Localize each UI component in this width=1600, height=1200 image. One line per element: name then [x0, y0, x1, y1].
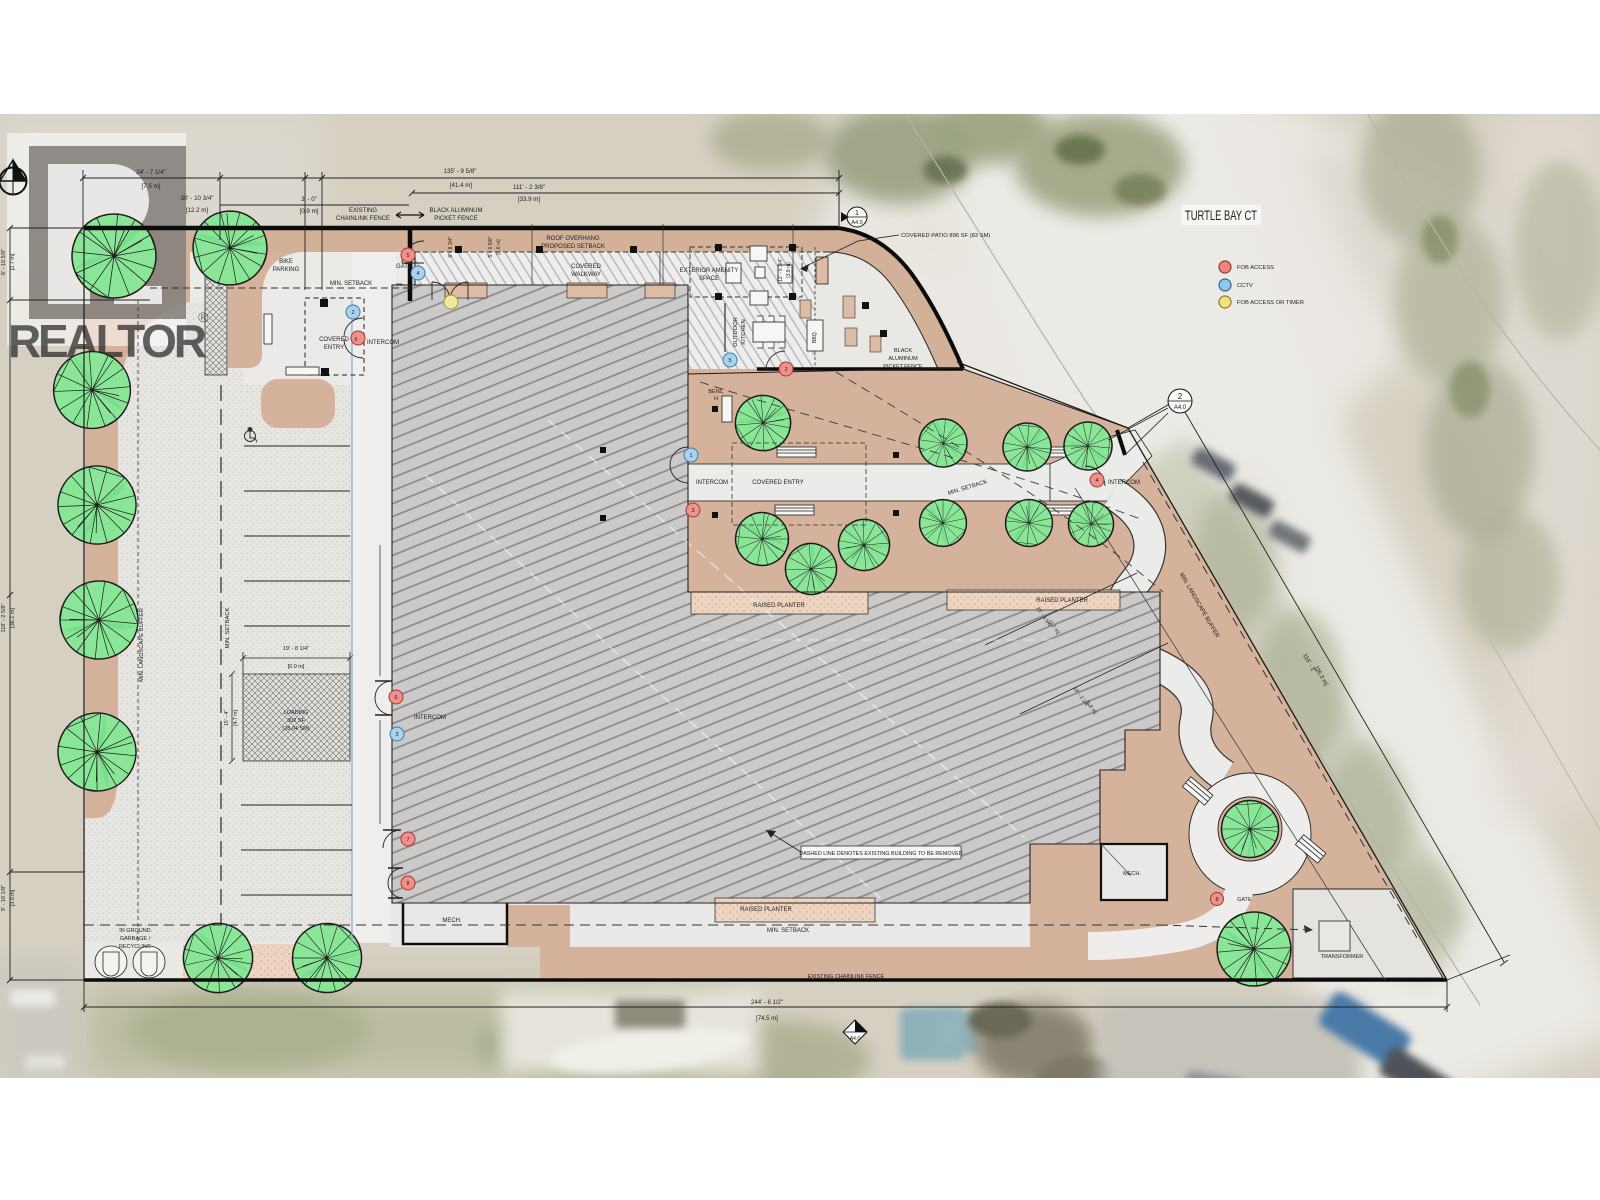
svg-text:RECYCLING: RECYCLING [119, 944, 151, 950]
svg-text:2: 2 [784, 367, 787, 373]
svg-text:8: 8 [1215, 897, 1218, 903]
svg-text:INTERCOM: INTERCOM [696, 480, 728, 486]
svg-text:6' - 8 3/4": 6' - 8 3/4" [448, 236, 454, 257]
svg-text:[36.1 m]: [36.1 m] [10, 608, 16, 628]
svg-text:PARKING: PARKING [273, 267, 300, 273]
svg-text:4: 4 [416, 271, 419, 277]
svg-text:MIN. SETBACK: MIN. SETBACK [767, 928, 809, 934]
svg-text:MIN. SETBACK: MIN. SETBACK [330, 281, 372, 287]
svg-text:GARBAGE /: GARBAGE / [120, 936, 151, 942]
svg-text:15' - 4": 15' - 4" [224, 710, 230, 726]
svg-text:3: 3 [691, 508, 694, 514]
svg-text:6: 6 [354, 337, 357, 343]
svg-text:[2.7 m]: [2.7 m] [10, 253, 16, 270]
svg-text:302 SF: 302 SF [287, 718, 305, 724]
svg-text:ALUMINUM: ALUMINUM [888, 356, 918, 362]
svg-text:TURTLE BAY CT: TURTLE BAY CT [1185, 208, 1257, 223]
svg-text:MECH.: MECH. [442, 918, 462, 924]
svg-text:111' - 2 3/8": 111' - 2 3/8" [513, 184, 545, 191]
svg-text:[74.5 m]: [74.5 m] [756, 1016, 778, 1022]
svg-text:[1.6 m]: [1.6 m] [496, 239, 502, 255]
svg-text:[0.9 m]: [0.9 m] [300, 208, 319, 215]
svg-text:INTERCOM: INTERCOM [414, 715, 446, 721]
svg-text:ENTRY: ENTRY [324, 345, 344, 351]
svg-text:MIN. SETBACK: MIN. SETBACK [225, 607, 231, 648]
svg-text:®: ® [198, 309, 209, 325]
svg-text:[3.8 m]: [3.8 m] [786, 262, 792, 278]
svg-text:H: H [714, 396, 718, 402]
svg-text:BBQ.: BBQ. [812, 331, 818, 343]
svg-text:A4.0: A4.0 [850, 1036, 861, 1042]
svg-text:[41.4 m]: [41.4 m] [450, 182, 473, 189]
svg-text:[33.9 m]: [33.9 m] [518, 196, 541, 203]
svg-text:244' - 6 1/2": 244' - 6 1/2" [751, 1000, 783, 1006]
svg-text:PICKET FENCE: PICKET FENCE [434, 216, 478, 222]
svg-text:[3.0 m]: [3.0 m] [10, 889, 16, 906]
svg-text:RAISED PLANTER: RAISED PLANTER [1036, 598, 1088, 604]
svg-text:5: 5 [406, 253, 409, 259]
svg-text:19' - 8 1/4": 19' - 8 1/4" [283, 646, 309, 652]
svg-text:ROOF OVERHANG: ROOF OVERHANG [546, 236, 600, 242]
svg-text:IN GROUND: IN GROUND [119, 928, 151, 934]
svg-text:RAISED PLANTER: RAISED PLANTER [740, 907, 792, 913]
svg-text:WALKWAY: WALKWAY [571, 272, 601, 278]
svg-text:[12.2 m]: [12.2 m] [186, 207, 209, 214]
svg-text:30' - 10 3/4": 30' - 10 3/4" [181, 195, 214, 202]
svg-text:4: 4 [1095, 478, 1098, 484]
svg-text:EXISTING CHAINLINK FENCE: EXISTING CHAINLINK FENCE [808, 974, 885, 980]
svg-text:MIN. LANDSCAPE BUFFER: MIN. LANDSCAPE BUFFER [139, 608, 145, 682]
svg-text:COVERED: COVERED [319, 337, 349, 343]
svg-text:7: 7 [406, 837, 409, 843]
svg-text:OUTDOOR: OUTDOOR [733, 317, 739, 347]
svg-text:BIKE: BIKE [279, 259, 293, 265]
svg-text:GATE: GATE [396, 264, 412, 270]
svg-text:1: 1 [689, 453, 692, 459]
svg-text:24' - 7 1/4": 24' - 7 1/4" [136, 169, 166, 176]
svg-text:SPACE: SPACE [699, 276, 719, 282]
svg-text:1: 1 [855, 210, 859, 217]
svg-text:135' - 9 5/8": 135' - 9 5/8" [444, 168, 477, 175]
svg-text:[6.0 m]: [6.0 m] [288, 664, 305, 670]
svg-text:8' - 10 5/8": 8' - 10 5/8" [1, 249, 7, 275]
svg-text:COVERED PATIO 896 SF (83 SM): COVERED PATIO 896 SF (83 SM) [901, 233, 990, 239]
svg-text:RAISED PLANTER: RAISED PLANTER [753, 603, 805, 609]
svg-text:BENC: BENC [708, 389, 723, 395]
svg-text:5' - 0 5/8": 5' - 0 5/8" [488, 236, 494, 257]
svg-text:DASHED LINE DENOTES EXISTING B: DASHED LINE DENOTES EXISTING BUILDING TO… [799, 851, 962, 857]
svg-text:EXTERIOR AMENITY: EXTERIOR AMENITY [680, 268, 739, 274]
svg-text:(28.04 SM): (28.04 SM) [282, 726, 309, 732]
svg-text:3: 3 [395, 732, 398, 738]
svg-text:CCTV: CCTV [1237, 283, 1253, 289]
svg-text:LOADING: LOADING [284, 710, 309, 716]
svg-text:9' - 10 1/8": 9' - 10 1/8" [1, 885, 7, 911]
svg-text:3' - 0": 3' - 0" [301, 196, 317, 203]
svg-text:COVERED: COVERED [571, 264, 601, 270]
svg-text:2: 2 [1178, 392, 1183, 401]
svg-text:PICKET,FENCE: PICKET,FENCE [883, 364, 923, 370]
svg-text:5: 5 [728, 358, 731, 364]
svg-text:8: 8 [406, 881, 409, 887]
svg-text:COVERED ENTRY: COVERED ENTRY [752, 480, 804, 486]
svg-text:A4.0: A4.0 [1174, 405, 1187, 411]
svg-text:FOB ACCESS OR TIMER: FOB ACCESS OR TIMER [1237, 300, 1304, 306]
svg-text:6: 6 [394, 695, 397, 701]
svg-text:PROPOSED SETBACK: PROPOSED SETBACK [541, 244, 605, 250]
svg-text:INTERCOM: INTERCOM [367, 340, 399, 346]
svg-text:[7.5 m]: [7.5 m] [142, 183, 161, 190]
svg-text:[4.7 m]: [4.7 m] [233, 710, 239, 726]
svg-text:12' - 6 3/4": 12' - 6 3/4" [778, 258, 784, 282]
svg-text:INTERCOM: INTERCOM [1108, 480, 1140, 486]
svg-text:2: 2 [351, 310, 354, 316]
svg-text:A4.0: A4.0 [851, 220, 862, 226]
svg-text:BLACK ALUMINUM: BLACK ALUMINUM [429, 208, 482, 214]
svg-text:FOB ACCESS: FOB ACCESS [1237, 265, 1274, 271]
svg-text:MECH.: MECH. [1123, 871, 1141, 877]
svg-text:EXISTING: EXISTING [349, 208, 377, 214]
svg-text:GATE: GATE [1237, 897, 1252, 903]
svg-text:118' - 2 5/8": 118' - 2 5/8" [1, 604, 7, 633]
svg-text:BLACK: BLACK [894, 348, 912, 354]
svg-text:KITCHEN: KITCHEN [741, 319, 747, 344]
svg-text:TRANSFORMER: TRANSFORMER [1321, 954, 1364, 960]
svg-text:CHAINLINK FENCE: CHAINLINK FENCE [336, 216, 390, 222]
